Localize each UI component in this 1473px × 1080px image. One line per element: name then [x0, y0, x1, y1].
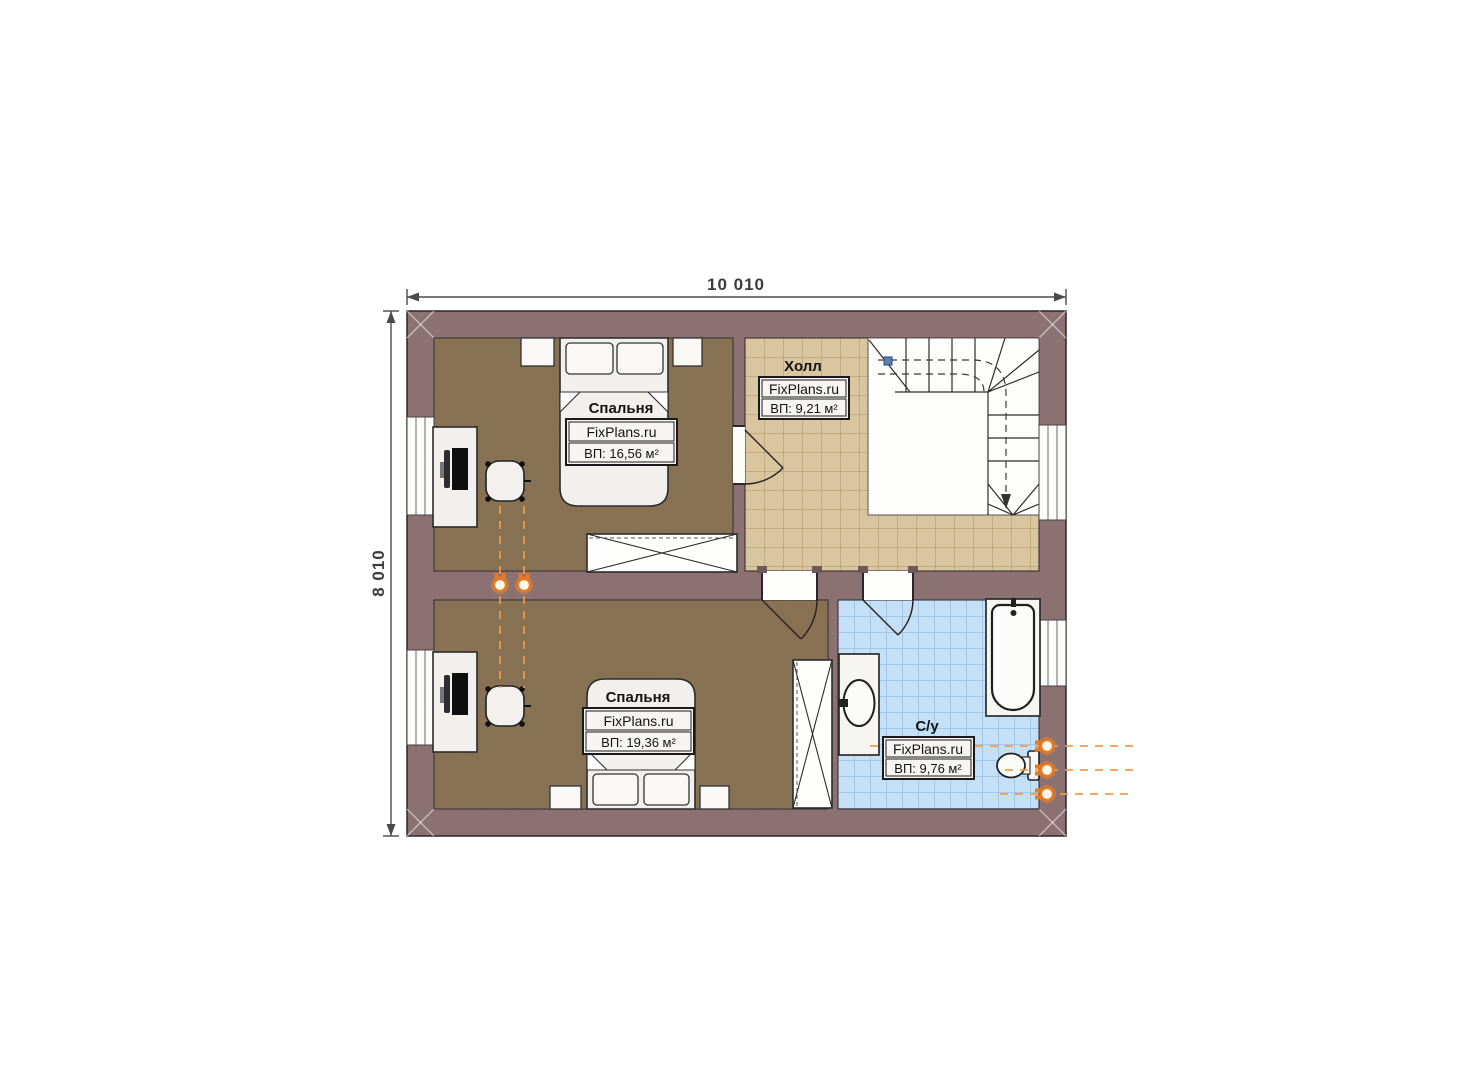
floor-plan-page: 10 010 8 010	[0, 0, 1473, 1080]
window-left-top	[407, 417, 434, 515]
room-name: С/у	[915, 718, 939, 735]
stairwell-opening	[868, 338, 1039, 515]
room-area: ВП: 19,36 м²	[601, 735, 676, 750]
nightstand	[550, 786, 581, 809]
room-name: Спальня	[606, 689, 671, 706]
wardrobe-1	[587, 534, 737, 572]
pillow	[644, 774, 689, 805]
window-left-bottom	[407, 650, 434, 745]
dimension-left-value: 8 010	[369, 549, 388, 597]
sink-basin	[844, 680, 875, 726]
room-name: Холл	[784, 358, 822, 375]
dim-arrow-right	[1054, 293, 1066, 302]
pillow	[617, 343, 663, 374]
dimension-top-value: 10 010	[707, 275, 765, 294]
window-right-stairs	[1039, 425, 1066, 520]
bathtub	[986, 598, 1040, 716]
room-area: ВП: 16,56 м²	[584, 446, 659, 461]
sink-faucet	[839, 699, 848, 707]
desk-2	[433, 652, 477, 752]
window-right-bathroom	[1039, 620, 1066, 686]
watermark: FixPlans.ru	[893, 741, 963, 757]
monitor-icon	[444, 675, 450, 713]
toilet	[997, 751, 1039, 780]
monitor-stand	[440, 462, 444, 478]
room-name: Спальня	[589, 400, 654, 417]
dimension-left: 8 010	[369, 311, 399, 836]
staircase	[868, 338, 1039, 515]
dimension-top: 10 010	[407, 275, 1066, 305]
wardrobe-2	[793, 660, 832, 808]
sink-vanity	[839, 654, 879, 755]
dim-arrow-left	[407, 293, 419, 302]
nightstand	[521, 338, 554, 366]
room-area: ВП: 9,21 м²	[770, 401, 838, 416]
watermark: FixPlans.ru	[586, 424, 656, 440]
computer-tower-icon	[452, 448, 468, 490]
computer-tower-icon	[452, 673, 468, 715]
toilet-bowl	[997, 754, 1025, 778]
stairs-start-marker	[884, 357, 892, 365]
monitor-icon	[444, 450, 450, 488]
nightstand	[700, 786, 729, 809]
pillow	[593, 774, 638, 805]
nightstand	[673, 338, 702, 366]
dim-arrow-up	[387, 311, 396, 323]
pillow	[566, 343, 613, 374]
watermark: FixPlans.ru	[603, 713, 673, 729]
monitor-stand	[440, 687, 444, 703]
desk-1	[433, 427, 477, 527]
bathtub-faucet	[1011, 598, 1016, 607]
room-area: ВП: 9,76 м²	[894, 761, 962, 776]
watermark: FixPlans.ru	[769, 381, 839, 397]
floor-plan-svg: 10 010 8 010	[0, 0, 1473, 1080]
dim-arrow-down	[387, 824, 396, 836]
